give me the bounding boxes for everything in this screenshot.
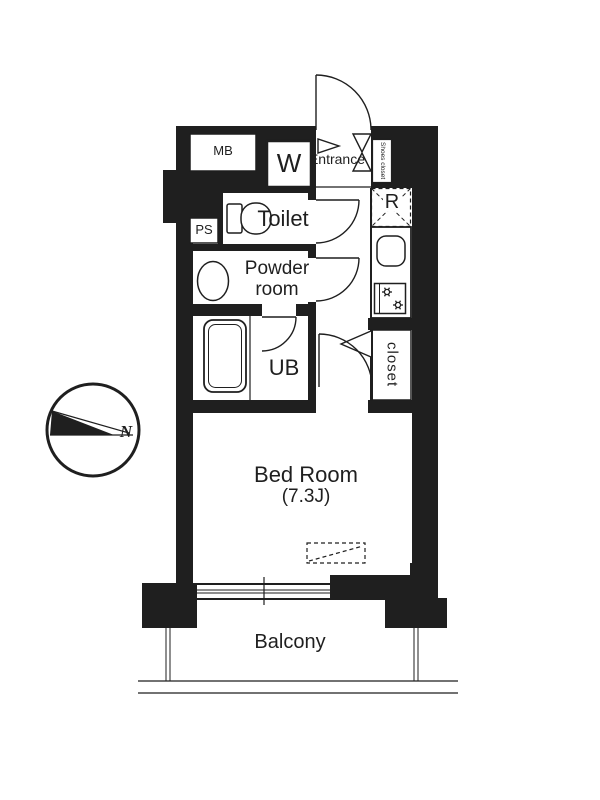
pipe-space-label: PS	[190, 223, 218, 237]
wall-corner-right	[410, 563, 438, 600]
shoes-closet-label: Shoes closet	[372, 140, 392, 182]
kitchen-sink-icon	[377, 236, 405, 266]
wall-kitchen-bottom	[368, 318, 412, 330]
bedroom-size-label: (7.3J)	[216, 487, 396, 508]
refrigerator-label: R	[382, 191, 402, 213]
window	[197, 577, 330, 605]
unit-bath-label: UB	[260, 356, 308, 380]
floorplan-drawing	[0, 0, 600, 800]
closet-label: closet	[377, 332, 405, 398]
doorframe-upper-icon	[353, 134, 371, 152]
wall-ub-right	[308, 302, 316, 413]
pillar-left	[142, 583, 197, 628]
entrance-door-arc	[316, 75, 371, 130]
balcony-label: Balcony	[230, 631, 350, 653]
meter-box-label: MB	[190, 144, 256, 158]
washbasin-icon	[198, 262, 229, 301]
floorplan-canvas: MB W Entrance Shoes closet PS Toilet Pow…	[0, 0, 600, 800]
wall-toilet-bottom	[190, 244, 316, 251]
wall-hall-stub2	[308, 244, 316, 258]
toilet-label: Toilet	[243, 207, 323, 231]
wall-ub-top-right	[296, 304, 310, 316]
bed-outline	[307, 543, 365, 563]
compass-north-label: N	[113, 423, 139, 442]
wall-ub-top-left	[180, 304, 262, 316]
wall-top-mb	[183, 126, 268, 134]
wall-right-main	[412, 188, 438, 575]
bath-door-arc	[262, 317, 296, 351]
bedroom-name-label: Bed Room	[216, 463, 396, 487]
powder-room-label: Powder room	[235, 258, 319, 300]
wall-ub-bottom	[180, 400, 310, 413]
powder-door-arc	[316, 258, 359, 301]
wall-closet-bottom	[368, 400, 438, 413]
entrance-label: Entrance	[300, 152, 374, 167]
bathtub-icon	[204, 320, 246, 392]
wall-hall-stub1	[308, 193, 316, 200]
pillar-right	[385, 598, 447, 628]
closet-door-icon	[341, 331, 371, 357]
